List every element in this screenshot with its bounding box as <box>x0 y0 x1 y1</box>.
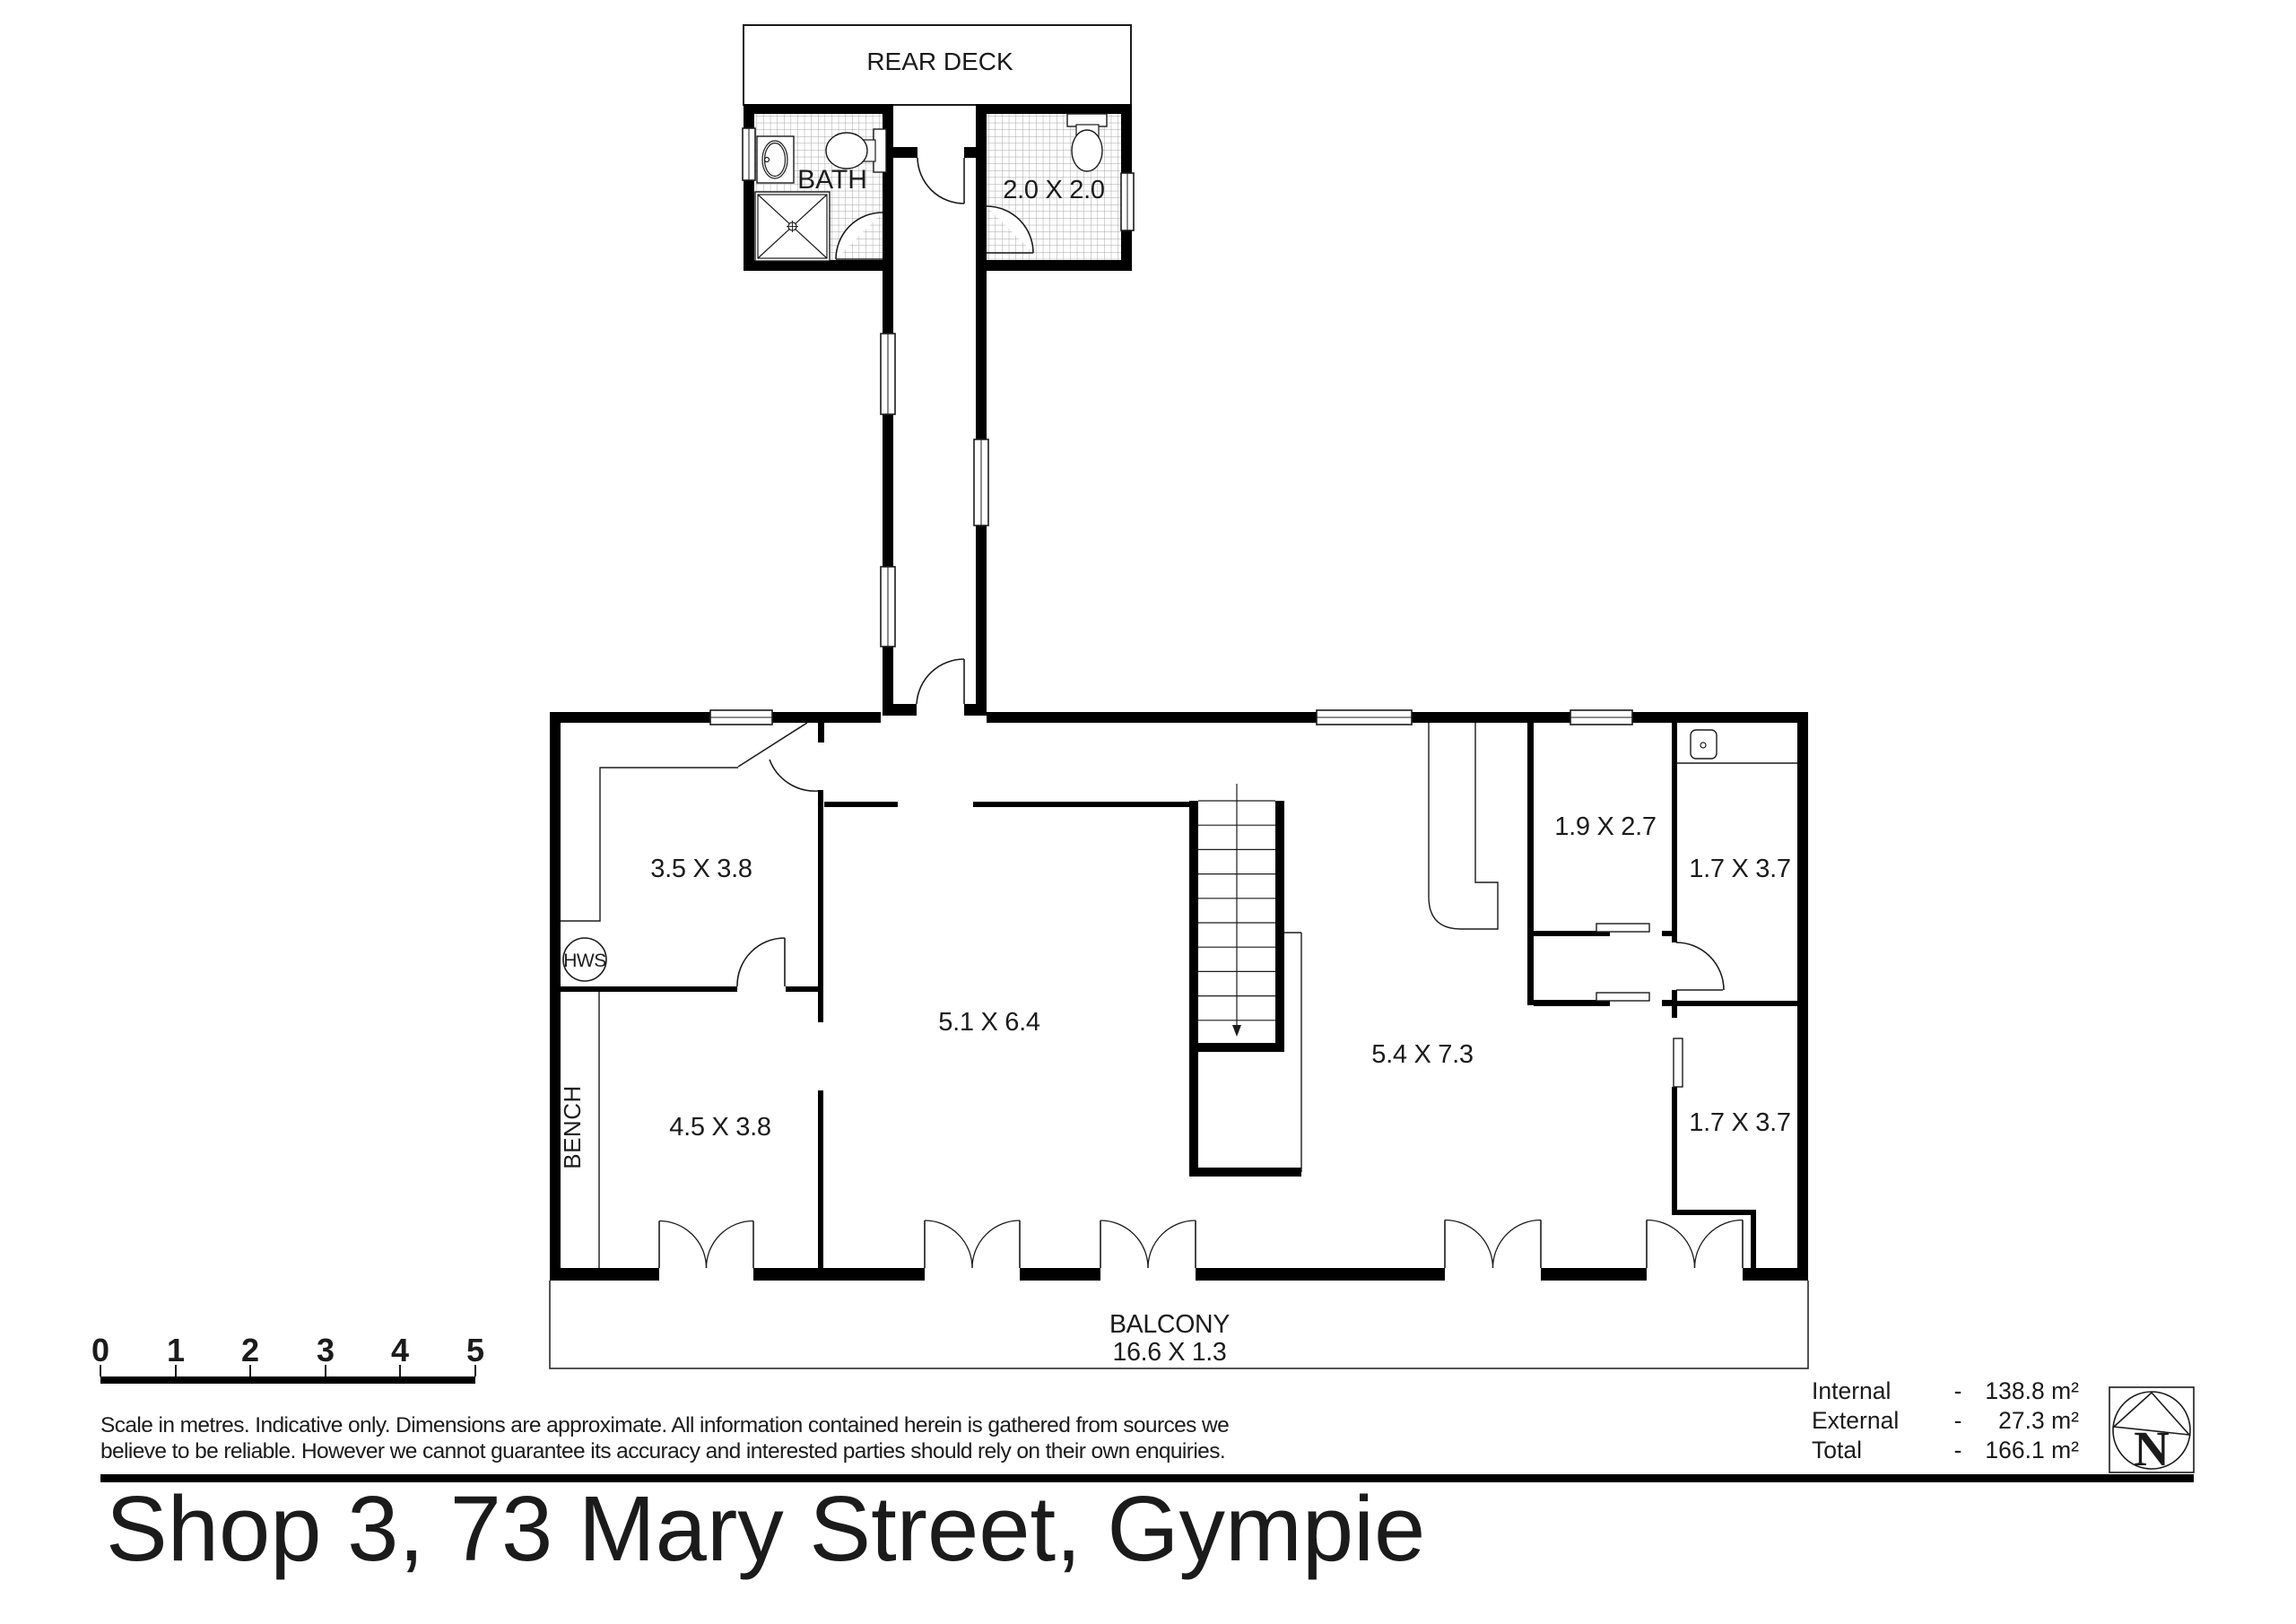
svg-text:16.6 X 1.3: 16.6 X 1.3 <box>1113 1338 1227 1367</box>
svg-text:4: 4 <box>391 1332 409 1368</box>
svg-text:1: 1 <box>167 1332 185 1368</box>
svg-text:2: 2 <box>241 1332 259 1368</box>
svg-text:166.1 m²: 166.1 m² <box>1985 1437 2079 1463</box>
svg-text:5.1 X 6.4: 5.1 X 6.4 <box>938 1008 1040 1037</box>
svg-text:-: - <box>1954 1407 1962 1434</box>
svg-text:Shop 3, 73 Mary Street, Gympie: Shop 3, 73 Mary Street, Gympie <box>106 1477 1425 1580</box>
svg-text:138.8 m²: 138.8 m² <box>1985 1377 2079 1404</box>
svg-text:N: N <box>2134 1421 2170 1476</box>
svg-text:1.9 X 2.7: 1.9 X 2.7 <box>1554 812 1656 841</box>
svg-text:-: - <box>1954 1437 1962 1463</box>
svg-text:27.3 m²: 27.3 m² <box>1998 1407 2079 1434</box>
svg-text:4.5 X 3.8: 4.5 X 3.8 <box>669 1113 770 1142</box>
svg-text:External: External <box>1812 1407 1899 1434</box>
svg-text:REAR DECK: REAR DECK <box>866 48 1013 75</box>
svg-text:Internal: Internal <box>1812 1377 1891 1404</box>
svg-text:3.5 X 3.8: 3.5 X 3.8 <box>650 855 752 883</box>
svg-text:Total: Total <box>1812 1437 1862 1463</box>
svg-text:BATH: BATH <box>797 165 867 195</box>
svg-text:2.0 X 2.0: 2.0 X 2.0 <box>1003 176 1104 204</box>
svg-text:5: 5 <box>466 1332 484 1368</box>
svg-text:believe to be reliable. Howeve: believe to be reliable. However we canno… <box>100 1439 1225 1463</box>
svg-text:HWS: HWS <box>563 951 606 971</box>
svg-text:-: - <box>1954 1377 1962 1404</box>
svg-text:5.4 X 7.3: 5.4 X 7.3 <box>1371 1040 1473 1069</box>
svg-text:BALCONY: BALCONY <box>1109 1310 1230 1339</box>
svg-text:0: 0 <box>91 1332 109 1368</box>
svg-text:1.7 X 3.7: 1.7 X 3.7 <box>1689 1108 1790 1137</box>
svg-text:1.7 X 3.7: 1.7 X 3.7 <box>1689 855 1790 883</box>
svg-text:BENCH: BENCH <box>559 1085 586 1169</box>
svg-text:Scale in metres. Indicative on: Scale in metres. Indicative only. Dimens… <box>100 1413 1229 1437</box>
svg-text:3: 3 <box>317 1332 335 1368</box>
